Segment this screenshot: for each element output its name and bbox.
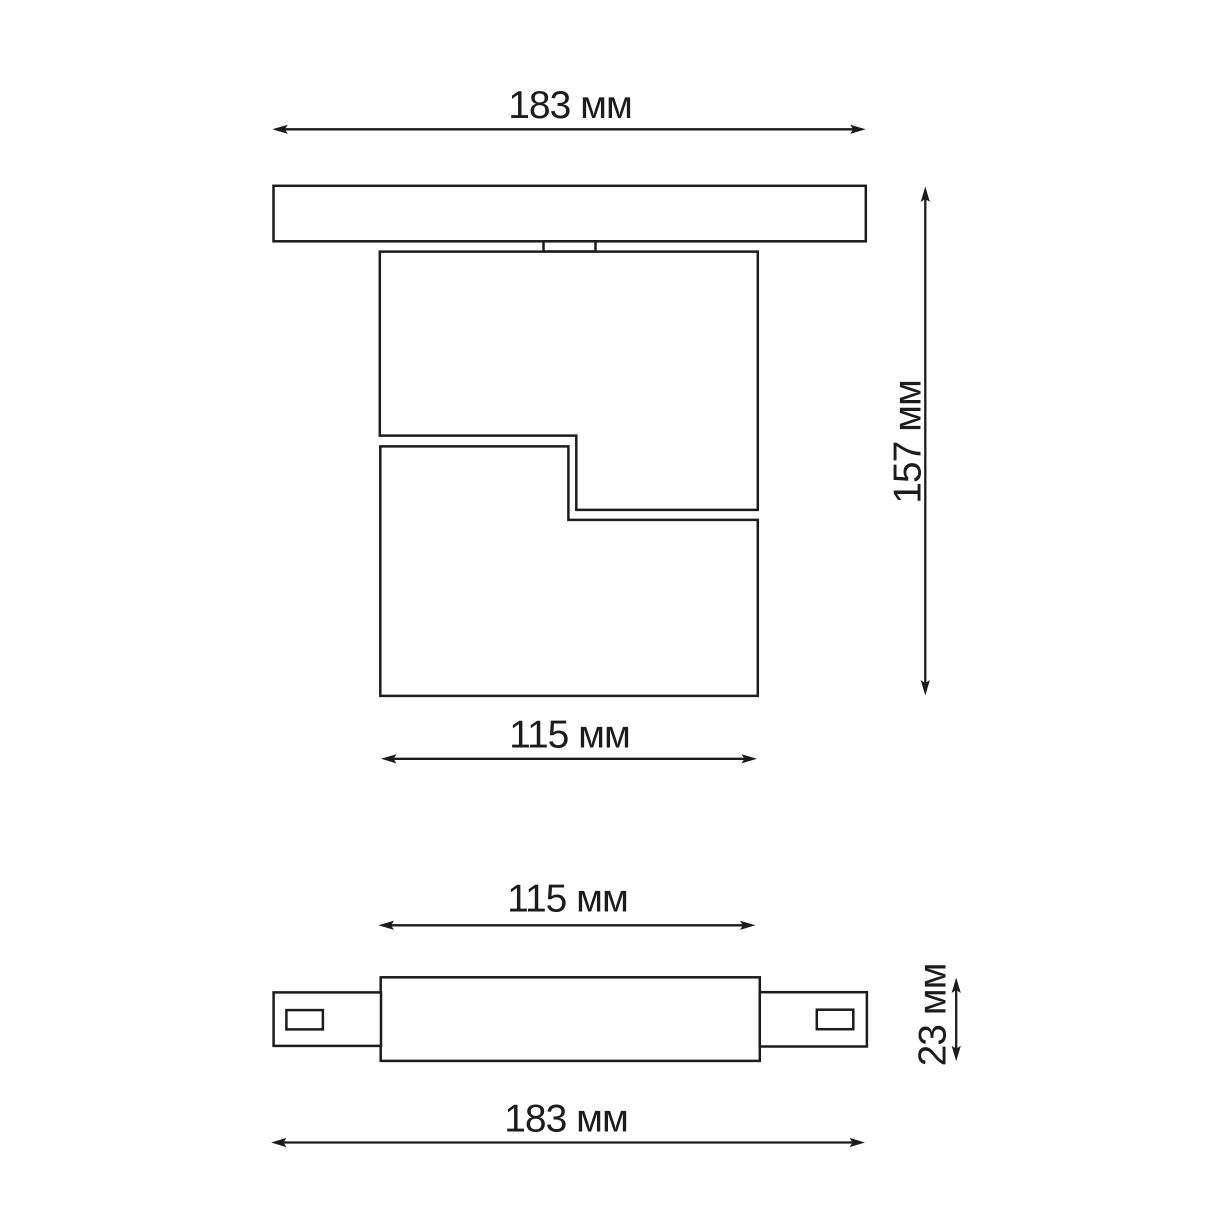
- svg-text:183 мм: 183 мм: [508, 84, 632, 127]
- svg-text:183 мм: 183 мм: [504, 1098, 628, 1141]
- svg-text:115 мм: 115 мм: [507, 878, 628, 921]
- svg-text:23 мм: 23 мм: [912, 964, 955, 1067]
- svg-text:157 мм: 157 мм: [887, 380, 930, 504]
- svg-text:115 мм: 115 мм: [509, 714, 630, 757]
